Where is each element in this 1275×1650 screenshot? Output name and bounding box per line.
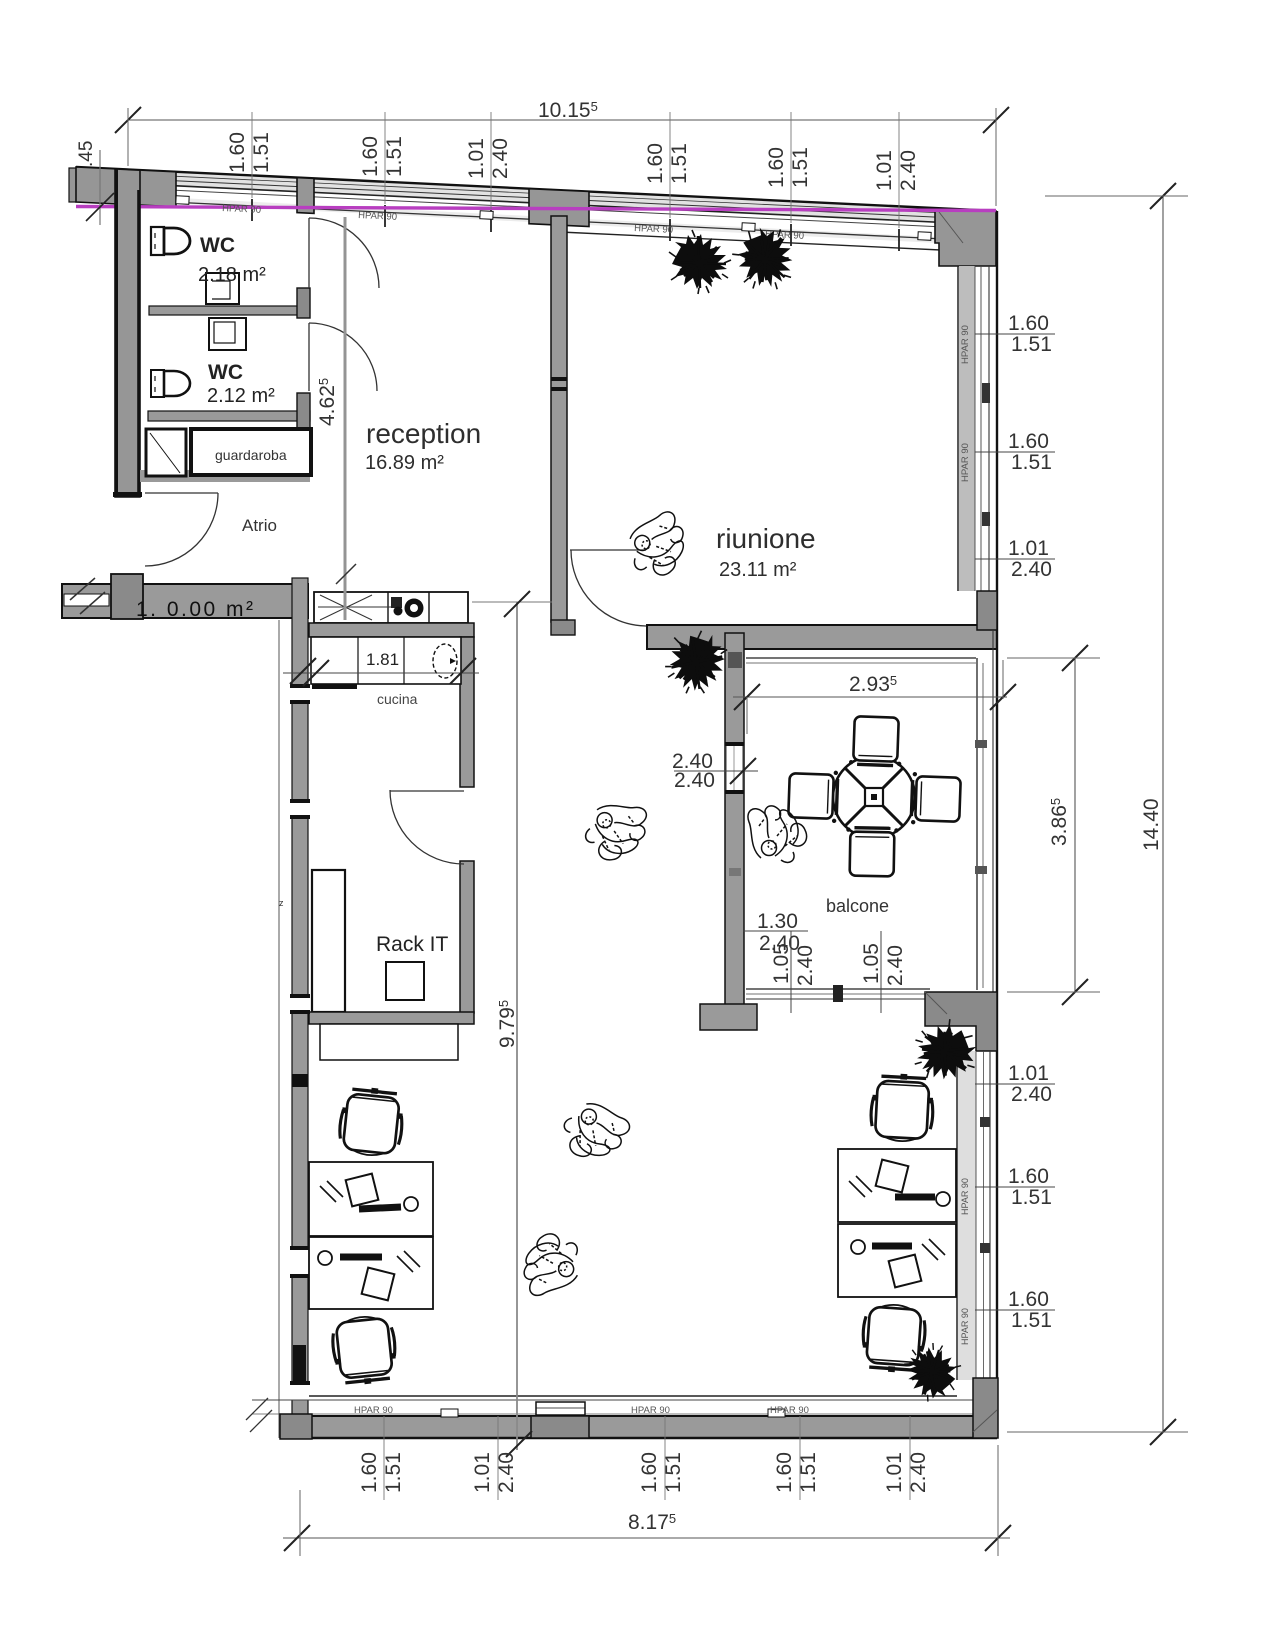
svg-text:1.01: 1.01	[883, 1452, 906, 1493]
svg-text:balcone: balcone	[826, 896, 889, 916]
svg-text:2.40: 2.40	[674, 769, 715, 792]
svg-text:1.51: 1.51	[1011, 333, 1052, 356]
svg-text:1.81: 1.81	[366, 650, 399, 669]
svg-text:1.60: 1.60	[1008, 312, 1049, 335]
svg-text:1.60: 1.60	[638, 1452, 661, 1493]
svg-text:1.60: 1.60	[1008, 1165, 1049, 1188]
svg-text:1.51: 1.51	[789, 147, 812, 188]
svg-text:2.40: 2.40	[495, 1452, 518, 1493]
svg-text:1.51: 1.51	[1011, 451, 1052, 474]
svg-text:HPAR 90: HPAR 90	[960, 325, 971, 364]
svg-text:23.11 m²: 23.11 m²	[719, 559, 797, 581]
svg-text:.45: .45	[76, 141, 97, 167]
svg-text:1.30: 1.30	[757, 910, 798, 933]
svg-text:2.40: 2.40	[884, 945, 907, 986]
svg-text:2.12 m²: 2.12 m²	[207, 385, 275, 407]
svg-text:1.60: 1.60	[644, 143, 667, 184]
svg-text:1.05: 1.05	[860, 943, 883, 984]
svg-text:HPAR 90: HPAR 90	[960, 1308, 970, 1345]
svg-text:1.60: 1.60	[358, 1452, 381, 1493]
svg-text:HPAR 90: HPAR 90	[960, 1178, 970, 1215]
svg-text:1.51: 1.51	[250, 132, 273, 173]
svg-text:1.51: 1.51	[668, 143, 691, 184]
svg-text:1.51: 1.51	[1011, 1186, 1052, 1209]
svg-text:1.01: 1.01	[465, 138, 488, 179]
svg-text:2.40: 2.40	[897, 150, 920, 191]
svg-text:14.40: 14.40	[1140, 798, 1163, 851]
svg-text:2.18 m²: 2.18 m²	[198, 264, 266, 286]
svg-text:HPAR 90: HPAR 90	[960, 443, 971, 482]
svg-text:Atrio: Atrio	[242, 516, 277, 535]
svg-text:1. 0.00 m²: 1. 0.00 m²	[136, 598, 256, 621]
svg-text:1.01: 1.01	[873, 150, 896, 191]
svg-text:HPAR 90: HPAR 90	[631, 1405, 670, 1416]
svg-text:1.60: 1.60	[1008, 1288, 1049, 1311]
svg-text:16.89 m²: 16.89 m²	[365, 452, 444, 474]
svg-text:1.60: 1.60	[765, 147, 788, 188]
svg-text:2.40: 2.40	[794, 945, 817, 986]
svg-text:z: z	[279, 898, 284, 908]
svg-text:HPAR 90: HPAR 90	[358, 210, 397, 223]
svg-text:2.40: 2.40	[1011, 558, 1052, 581]
svg-text:HPAR 90: HPAR 90	[770, 1405, 809, 1416]
svg-text:2.40: 2.40	[1011, 1083, 1052, 1106]
svg-text:2.40: 2.40	[489, 138, 512, 179]
svg-text:1.01: 1.01	[1008, 537, 1049, 560]
svg-text:WC: WC	[208, 361, 243, 384]
svg-text:HPAR 90: HPAR 90	[354, 1405, 393, 1416]
svg-text:HPAR 90: HPAR 90	[634, 223, 673, 236]
svg-text:1.60: 1.60	[359, 136, 382, 177]
svg-text:riunione: riunione	[716, 523, 816, 554]
svg-text:1.51: 1.51	[1011, 1309, 1052, 1332]
svg-text:1.51: 1.51	[382, 1452, 405, 1493]
svg-text:1.51: 1.51	[383, 136, 406, 177]
svg-text:WC: WC	[200, 234, 235, 257]
svg-text:1.60: 1.60	[226, 132, 249, 173]
svg-text:1.60: 1.60	[1008, 430, 1049, 453]
svg-text:10.155: 10.155	[538, 99, 598, 122]
svg-text:1.60: 1.60	[773, 1452, 796, 1493]
svg-text:guardaroba: guardaroba	[215, 447, 287, 463]
svg-text:1.01: 1.01	[471, 1452, 494, 1493]
svg-text:1.05: 1.05	[770, 943, 793, 984]
svg-text:1.01: 1.01	[1008, 1062, 1049, 1085]
svg-text:HPAR 90: HPAR 90	[222, 203, 261, 216]
svg-text:reception: reception	[366, 418, 481, 449]
svg-text:Rack IT: Rack IT	[376, 933, 449, 956]
svg-text:cucina: cucina	[377, 691, 418, 707]
